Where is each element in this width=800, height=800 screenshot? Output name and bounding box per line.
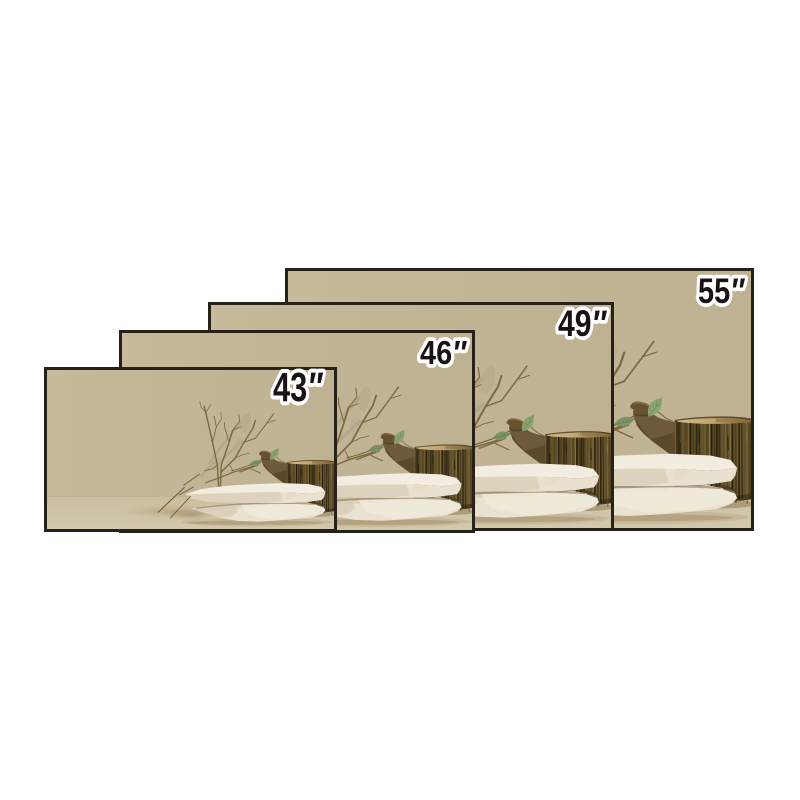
svg-text:43″: 43″ [273,364,324,410]
svg-text:49″: 49″ [558,303,608,344]
svg-text:46″: 46″ [420,334,467,371]
svg-text:55″: 55″ [698,272,746,311]
